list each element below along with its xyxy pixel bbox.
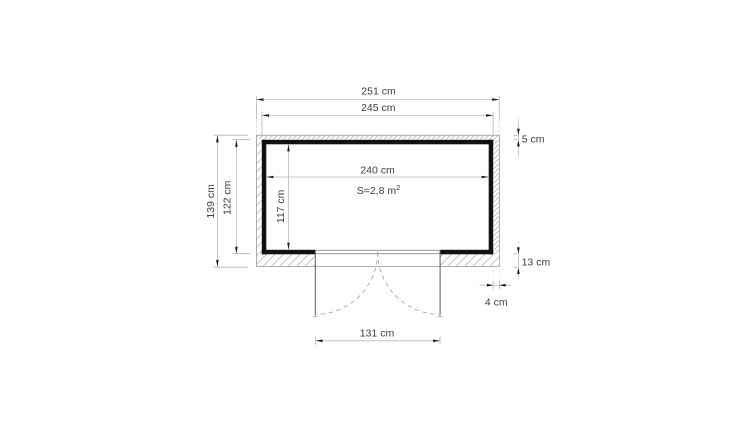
svg-text:S=2,8 m2: S=2,8 m2 xyxy=(357,183,401,197)
svg-text:122 cm: 122 cm xyxy=(222,180,234,215)
svg-text:139 cm: 139 cm xyxy=(205,184,217,219)
svg-text:131 cm: 131 cm xyxy=(360,327,395,339)
svg-text:245 cm: 245 cm xyxy=(361,102,396,114)
svg-text:117 cm: 117 cm xyxy=(275,189,287,223)
svg-text:240 cm: 240 cm xyxy=(360,165,395,177)
svg-text:13 cm: 13 cm xyxy=(522,257,551,269)
svg-text:251 cm: 251 cm xyxy=(361,86,396,98)
svg-text:5 cm: 5 cm xyxy=(522,133,545,145)
svg-text:4 cm: 4 cm xyxy=(485,297,508,309)
